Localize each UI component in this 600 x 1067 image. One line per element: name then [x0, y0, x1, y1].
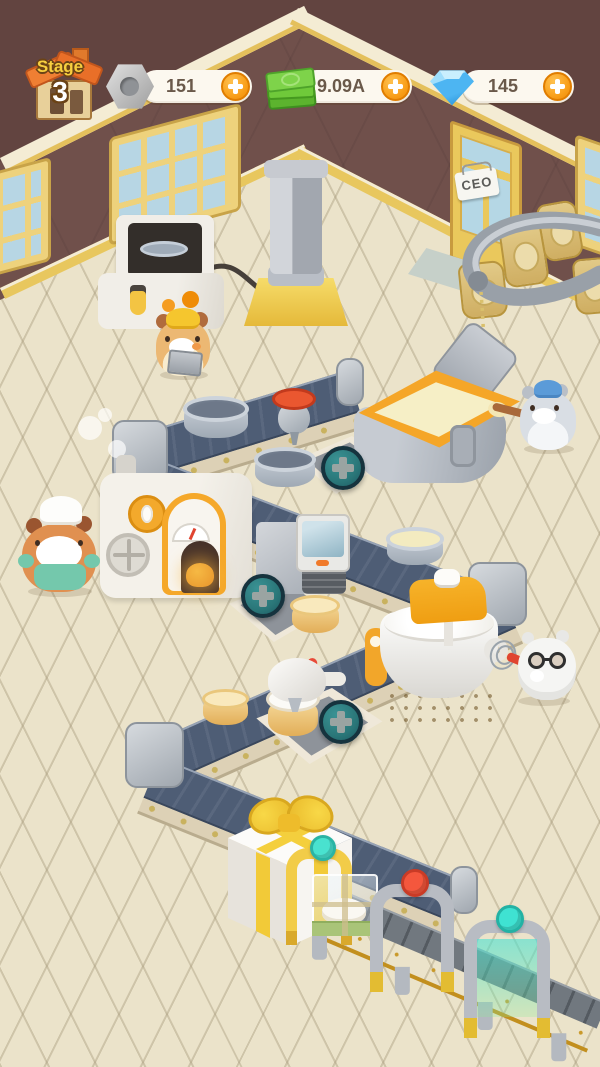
mitten-icon [84, 554, 100, 568]
scientist-hamster[interactable] [500, 626, 580, 706]
scanner-slot [302, 572, 346, 594]
box-ribbon [312, 902, 378, 907]
stage-number: 3 [12, 76, 108, 108]
glasses-icon [528, 652, 545, 669]
screws-value: 151 [140, 76, 222, 97]
oven-fan-icon [106, 533, 150, 577]
mixer-shaft [444, 620, 453, 646]
chef-hat-icon [40, 496, 82, 522]
chef-hamster[interactable] [18, 496, 102, 596]
console-button-big [182, 291, 199, 308]
hamster-body [518, 638, 576, 700]
scanner-light-icon [316, 560, 329, 566]
oven-arch [162, 493, 226, 595]
batter-pan [386, 527, 444, 565]
baked-cake [202, 689, 249, 725]
clipboard-icon [167, 349, 203, 376]
currency-gems[interactable]: 145 [462, 70, 574, 103]
hamster-muzzle [530, 670, 544, 682]
dispenser-head [268, 658, 326, 702]
mixer-knob [434, 569, 460, 588]
hamster-muzzle [532, 408, 556, 424]
scanner-screen [302, 521, 344, 557]
gems-value: 145 [462, 76, 544, 97]
hard-hat-icon [166, 308, 200, 329]
mitten-icon [18, 554, 34, 568]
cash-value: 9.09A [300, 76, 382, 97]
batter-hamster[interactable] [490, 382, 578, 454]
oven-gauge-icon [172, 523, 210, 542]
belt-end-cap [450, 866, 478, 914]
add-machine-button[interactable] [241, 574, 285, 618]
steam-puff [98, 408, 112, 422]
apron-icon [34, 564, 86, 590]
glowing-bread-icon [186, 563, 214, 587]
add-machine-button[interactable] [319, 700, 363, 744]
dough-funnel[interactable] [272, 388, 320, 450]
steam-puff [78, 416, 102, 440]
currency-cash[interactable]: 9.09A [300, 70, 412, 103]
oven-timer-icon [128, 495, 166, 533]
baking-pan [254, 447, 316, 487]
conveyor-leg [551, 1033, 566, 1061]
add-gems-button[interactable] [543, 72, 572, 101]
vat-latch [450, 425, 476, 467]
gate-foot [286, 931, 297, 945]
press-column [270, 168, 322, 274]
hamster-cheek [192, 343, 201, 350]
gate-foot [370, 972, 383, 992]
add-cash-button[interactable] [381, 72, 410, 101]
stage-label: Stage [12, 57, 108, 77]
currency-screws[interactable]: 151 [140, 70, 252, 103]
cyan-lamp-icon [496, 905, 524, 933]
funnel-ring [272, 388, 316, 410]
pan-display-icon [140, 241, 188, 257]
bow-knot-icon [278, 814, 300, 832]
gate-foot [441, 972, 454, 992]
oven-opening [181, 541, 219, 593]
teal-lamp-icon [310, 835, 336, 861]
funnel-spout [290, 432, 299, 445]
gate-foot [537, 1018, 550, 1038]
glasses-bridge [544, 658, 550, 661]
add-screws-button[interactable] [221, 72, 250, 101]
packaged-cake [312, 874, 378, 936]
bread-oven[interactable] [100, 455, 260, 605]
belt-corner [125, 722, 184, 788]
gate-foot [464, 1018, 477, 1038]
scanner-gate-red [370, 884, 454, 992]
scanner-gate-cyan [464, 920, 550, 1038]
baking-pan [183, 396, 249, 438]
add-machine-button[interactable] [321, 446, 365, 490]
worker-hamster[interactable] [152, 312, 214, 378]
red-lamp-icon [401, 869, 429, 897]
glasses-icon [549, 652, 566, 669]
scan-beam [477, 939, 537, 1017]
stage-badge[interactable]: Stage 3 [12, 36, 108, 120]
console-lever [130, 291, 146, 315]
press-cap [264, 160, 328, 178]
game-scene: CEO [0, 0, 600, 1067]
blue-cap-icon [534, 380, 562, 398]
hydraulic-press[interactable] [244, 168, 348, 328]
